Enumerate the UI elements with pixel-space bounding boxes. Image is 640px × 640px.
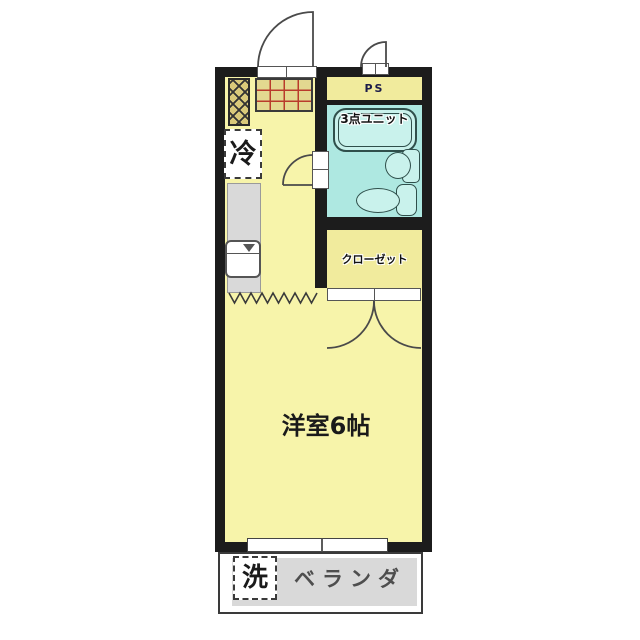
pipe-space-label: PS <box>365 82 385 95</box>
closet-label: クローゼット <box>342 251 408 267</box>
entrance-door-frame <box>257 66 317 78</box>
washing-machine-space: 洗 <box>233 556 277 600</box>
unit-bath-label: 3点ユニット <box>327 110 422 127</box>
pipe-space: PS <box>327 77 422 105</box>
closet-door-frame <box>327 288 421 301</box>
washing-machine-label: 洗 <box>242 565 268 591</box>
sliding-window <box>247 538 388 552</box>
bathroom-door-frame <box>312 151 329 189</box>
service-hatch-frame-tick <box>375 64 376 74</box>
refrigerator-space: 冷 <box>224 129 262 179</box>
sink-divider-line <box>227 253 259 254</box>
floorplan-canvas: 冷 PS 3点ユニット クローゼット 洋室6帖 洗 ベランダ <box>0 0 640 640</box>
toilet-bowl <box>356 188 400 213</box>
wash-basin <box>385 152 411 179</box>
entrance-door-frame-tick <box>286 67 287 77</box>
service-hatch-frame <box>362 63 389 75</box>
entrance-door-swing-arc <box>258 12 313 67</box>
kitchen-sink <box>225 240 261 278</box>
veranda-label: ベランダ <box>285 563 415 593</box>
closet-door-frame-tick <box>374 289 375 300</box>
shoe-cabinet <box>228 78 250 126</box>
bathroom-door-frame-line <box>313 169 328 170</box>
refrigerator-label: 冷 <box>230 141 257 168</box>
closet-area: クローゼット <box>327 230 422 288</box>
closet-partition-wall <box>315 217 422 230</box>
kitchen-stove-counter <box>255 78 313 112</box>
main-room-label: 洋室6帖 <box>226 406 426 441</box>
faucet-icon <box>243 244 255 252</box>
